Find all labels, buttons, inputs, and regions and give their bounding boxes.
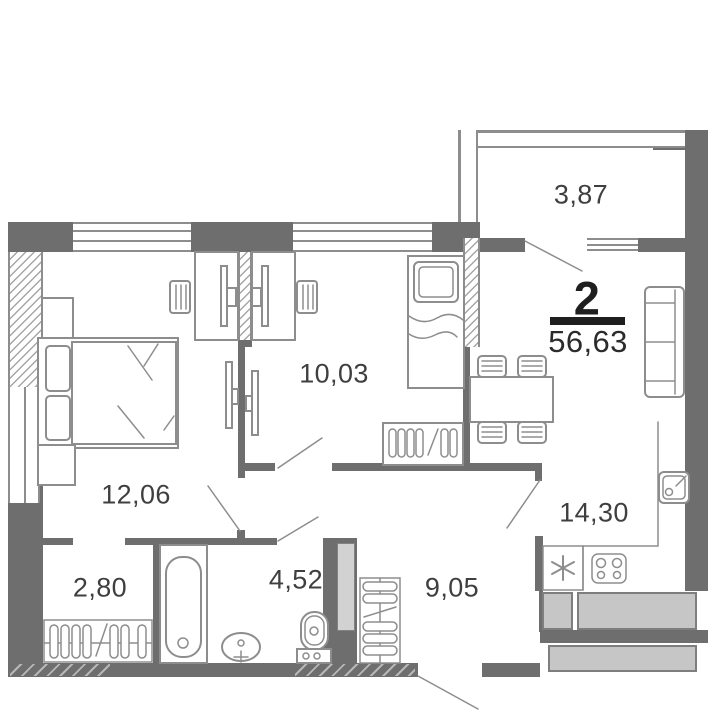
- tv-icon: [246, 371, 258, 435]
- apartment-total-area: 56,63: [548, 324, 628, 360]
- tv-icon: [226, 362, 238, 428]
- toilet-icon: [297, 612, 331, 663]
- room-area-label-bedroom: 12,06: [101, 480, 171, 511]
- hob-icon: [592, 554, 626, 583]
- office-chair-icon: [297, 281, 317, 313]
- double-bed-icon: [38, 338, 178, 448]
- sofa-icon: [645, 287, 684, 397]
- dining-table-icon: [470, 377, 553, 422]
- room-area-label-hallway: 9,05: [425, 573, 479, 604]
- room-area-label-kitchen: 14,30: [559, 498, 629, 529]
- room-area-label-room: 10,03: [299, 359, 369, 390]
- kitchen-sink-icon: [659, 472, 689, 503]
- single-bed-icon: [408, 256, 464, 388]
- floor-plan: 12,06 10,03 2,80 4,52 9,05 14,30 3,87 2 …: [0, 0, 720, 720]
- washbasin-icon: [222, 633, 260, 662]
- bathtub-icon: [160, 545, 207, 663]
- fridge-icon: [543, 546, 583, 590]
- room-area-label-bathroom: 4,52: [269, 565, 323, 596]
- wardrobe-rail-icon: [44, 620, 152, 662]
- room-area-label-balcony: 3,87: [554, 180, 608, 211]
- wardrobe-rail-icon: [383, 423, 463, 465]
- coat-rack-icon: [360, 578, 400, 663]
- office-chair-icon: [170, 281, 190, 313]
- room-area-label-wardrobe: 2,80: [73, 573, 127, 604]
